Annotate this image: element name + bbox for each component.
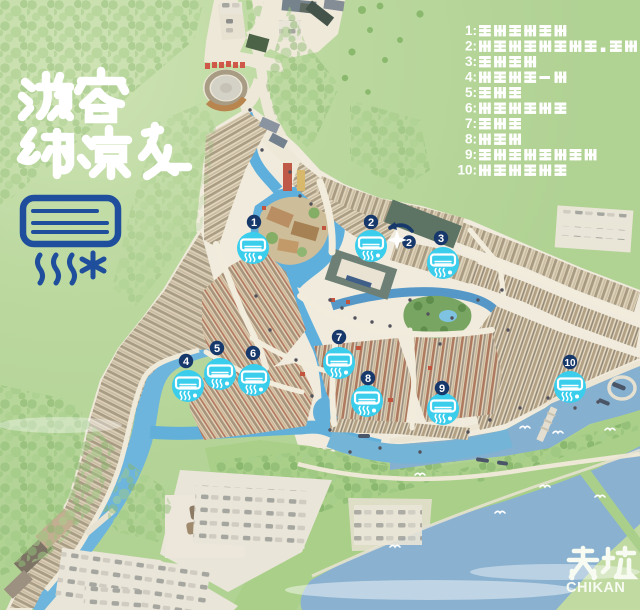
svg-text:6:: 6: <box>465 101 477 116</box>
svg-text:5:: 5: <box>465 85 477 100</box>
svg-text:6: 6 <box>250 348 256 360</box>
svg-text:2: 2 <box>406 237 412 249</box>
svg-text:2: 2 <box>368 217 374 229</box>
svg-text:4:: 4: <box>465 70 477 85</box>
svg-text:7: 7 <box>336 332 342 344</box>
svg-text:CHIKAN: CHIKAN <box>566 580 625 596</box>
svg-text:9:: 9: <box>465 147 477 162</box>
svg-text:7:: 7: <box>465 116 477 131</box>
svg-text:1: 1 <box>251 217 257 229</box>
svg-text:10:: 10: <box>457 163 477 178</box>
svg-text:10: 10 <box>564 358 576 369</box>
svg-text:3: 3 <box>438 233 444 245</box>
svg-text:4: 4 <box>183 356 190 368</box>
svg-text:8: 8 <box>365 373 371 385</box>
svg-text:9: 9 <box>439 383 445 395</box>
svg-text:3:: 3: <box>465 54 477 69</box>
svg-text:1:: 1: <box>465 23 477 38</box>
svg-text:8:: 8: <box>465 132 477 147</box>
svg-text:5: 5 <box>214 343 220 355</box>
svg-text:2:: 2: <box>465 39 477 54</box>
